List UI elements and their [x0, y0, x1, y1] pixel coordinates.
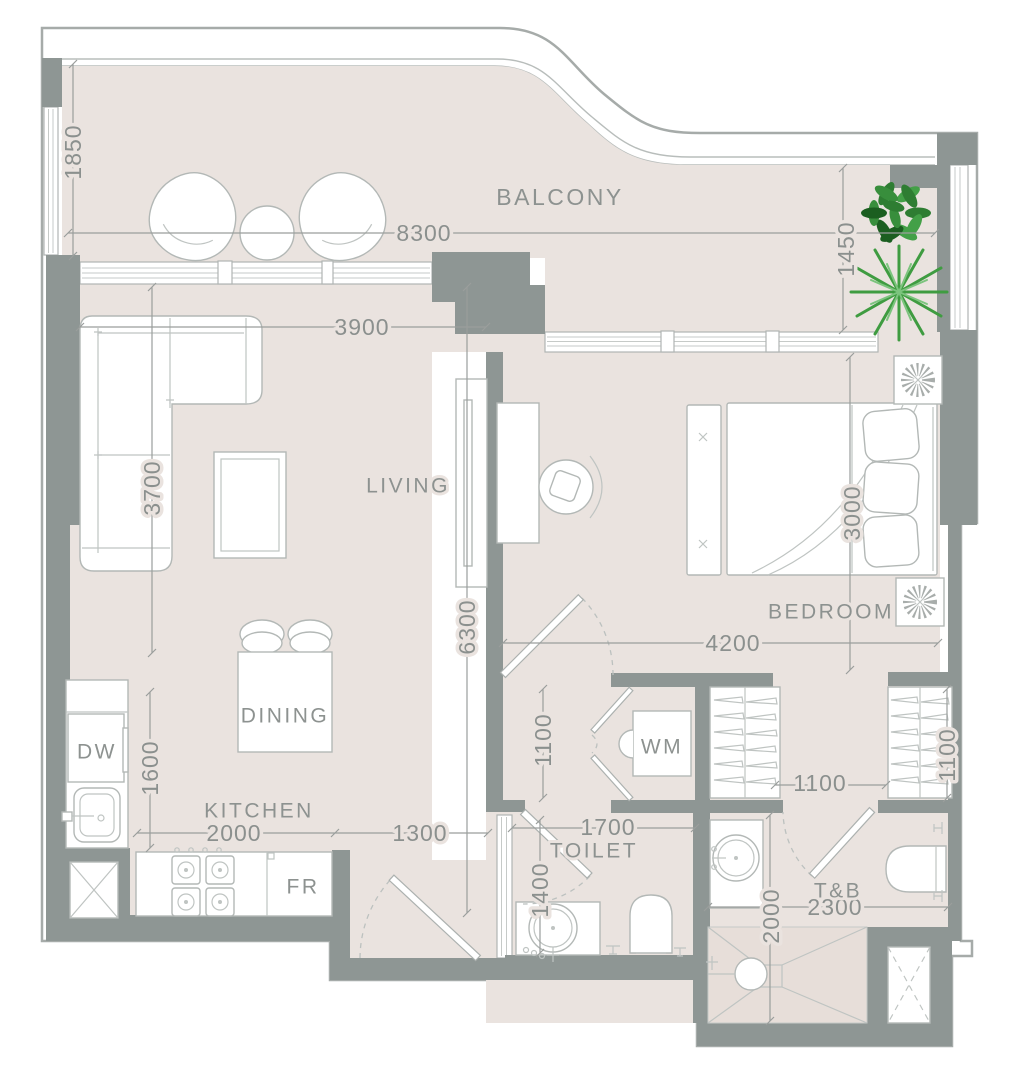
shaft-tb	[888, 947, 930, 1023]
tb-wc	[886, 846, 946, 892]
dim-kitchen-depth: 1600	[137, 740, 163, 795]
bed	[727, 403, 937, 575]
dim-toilet-width: 1700	[580, 814, 635, 840]
dim-living-depth: 3700	[139, 460, 165, 515]
shaft-kitchen	[70, 862, 118, 918]
window-toilet	[497, 815, 512, 958]
window-left	[44, 107, 58, 255]
tv-console	[456, 379, 487, 587]
side-table-top	[894, 356, 942, 404]
desk	[497, 403, 539, 543]
dim-bedroom-width: 4200	[705, 630, 760, 656]
dim-unit-depth: 6300	[454, 599, 480, 654]
label-dining: DINING	[241, 705, 330, 728]
dim-entry-width: 1300	[392, 820, 447, 846]
dim-bedroom-depth: 3000	[839, 485, 865, 540]
label-wm: WM	[641, 736, 683, 759]
dim-hall-length: 1100	[530, 713, 556, 766]
label-fr: FR	[287, 876, 320, 899]
dim-balcony-right-depth: 1450	[833, 221, 859, 276]
coffee-table	[214, 452, 286, 558]
dim-balcony-width: 8300	[396, 220, 451, 246]
kitchen-counter-left	[62, 680, 128, 848]
dim-toilet-depth: 1400	[527, 862, 553, 917]
shower	[706, 927, 867, 1023]
dim-wardrobe-depth: 1100	[934, 728, 960, 781]
dim-living-width: 3900	[334, 314, 389, 340]
label-living: LIVING	[366, 475, 450, 498]
floor-plan-page: 1850 8300 1450 3900 3700 6300 3000 4200 …	[0, 0, 1015, 1080]
label-tb: T&B	[814, 880, 862, 903]
label-toilet: TOILET	[550, 840, 638, 863]
dim-tb-depth: 2000	[758, 888, 784, 943]
label-kitchen: KITCHEN	[204, 800, 314, 823]
window-living	[80, 261, 432, 284]
label-bedroom: BEDROOM	[768, 601, 894, 624]
side-table-bottom	[896, 578, 944, 626]
dim-closet-gap: 1100	[793, 770, 846, 796]
floor-plan-canvas: 1850 8300 1450 3900 3700 6300 3000 4200 …	[0, 0, 1015, 1080]
dim-kitchen-width: 2000	[206, 820, 261, 846]
bedroom-bench	[687, 405, 721, 575]
tb-sink	[710, 820, 763, 908]
label-dw: DW	[77, 741, 117, 764]
toilet-wc	[630, 895, 672, 953]
window-bedroom	[545, 331, 878, 352]
dining-table	[238, 652, 332, 752]
window-balcony-right	[950, 165, 968, 330]
wardrobe-left	[710, 687, 780, 798]
label-balcony: BALCONY	[496, 184, 623, 210]
dim-balcony-depth: 1850	[60, 124, 86, 179]
